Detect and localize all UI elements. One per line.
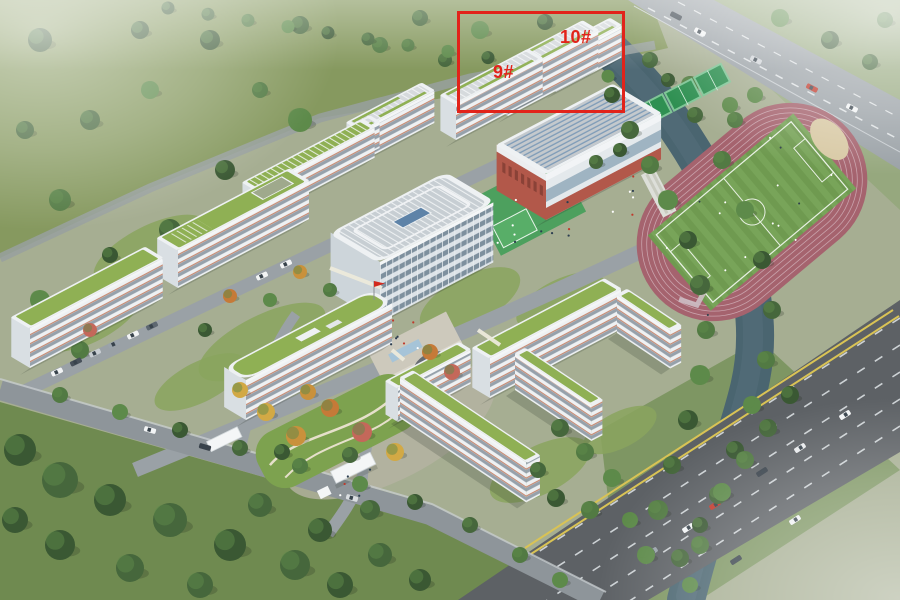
scene-svg (0, 0, 900, 600)
building-9-label: 9# (493, 63, 514, 81)
annotation-box (457, 11, 625, 113)
campus-aerial-image: 10# 9# (0, 0, 900, 600)
building-10-label: 10# (560, 28, 592, 46)
